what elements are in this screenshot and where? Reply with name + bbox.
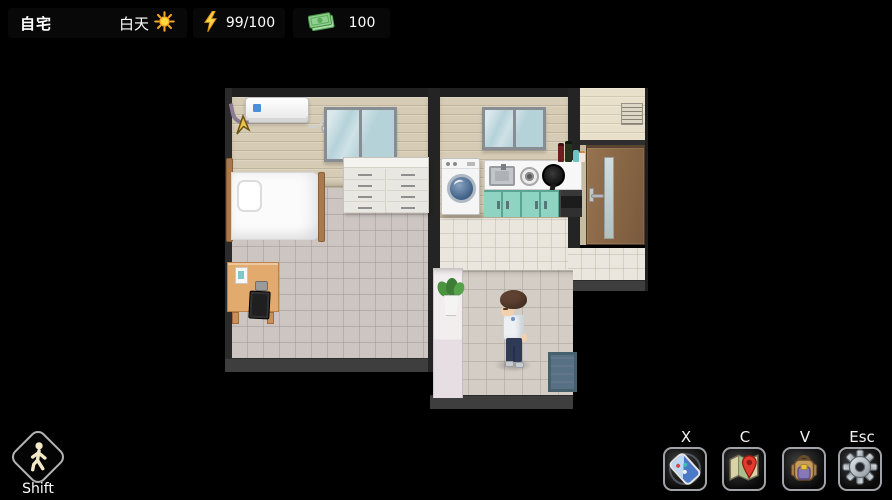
hotkey-label-esc: Esc <box>838 428 886 445</box>
bed[interactable] <box>226 158 331 242</box>
hotkey-group-x: X <box>663 428 709 491</box>
entry-floor <box>568 248 645 282</box>
hotkey-group-v: V <box>782 428 828 491</box>
banknote-icon <box>308 11 336 35</box>
dresser-top <box>344 158 428 168</box>
bedroom-window <box>324 107 397 162</box>
location-label: 自宅 <box>20 13 52 34</box>
entry-south-wall <box>567 280 648 291</box>
kitchen-counter[interactable] <box>484 160 582 217</box>
bedroom-south-wall <box>225 358 440 372</box>
backpack-icon <box>788 451 820 487</box>
shift-run-button[interactable]: Shift <box>8 433 70 497</box>
hotkey-label-x: X <box>663 428 709 445</box>
laptop[interactable] <box>248 290 270 319</box>
energy-bar: 99/100 <box>193 8 285 38</box>
walking-person-icon <box>21 440 55 478</box>
desk[interactable] <box>227 262 279 324</box>
desk-leg <box>232 312 239 324</box>
character-hair <box>500 290 527 309</box>
washer-drum <box>447 174 476 203</box>
money-value: 100 <box>349 15 376 31</box>
settings-gear-icon <box>842 449 878 489</box>
condiment-bottles <box>558 141 584 162</box>
player-character <box>493 290 533 374</box>
potted-plant <box>437 278 465 322</box>
phone-icon <box>668 451 703 487</box>
window-frame <box>513 110 516 147</box>
stove-burner <box>520 167 539 186</box>
dresser-drawers-right <box>387 169 429 211</box>
kitchen-floor <box>440 218 568 275</box>
sun-icon <box>154 11 175 36</box>
washing-machine[interactable] <box>441 158 480 215</box>
lightning-icon <box>203 11 218 36</box>
kitchen-window <box>482 107 546 150</box>
ac-display <box>253 104 261 112</box>
hotkey-label-v: V <box>782 428 828 445</box>
dresser-drawers-left <box>344 169 386 211</box>
character-pendant <box>511 317 515 321</box>
oven <box>559 190 582 217</box>
map-icon <box>728 451 760 487</box>
settings-button[interactable] <box>838 447 882 491</box>
character-shoe <box>505 361 514 367</box>
phone-button[interactable] <box>663 447 707 491</box>
time-label: 白天 <box>119 13 149 34</box>
door-handle-lever <box>591 194 604 198</box>
shift-key-label: Shift <box>8 481 68 497</box>
charger <box>255 281 268 291</box>
countertop <box>484 160 582 190</box>
door-glass <box>604 157 614 239</box>
doormat <box>548 352 577 392</box>
washer-panel <box>442 159 479 169</box>
hotkey-label-c: C <box>722 428 768 445</box>
character-pants <box>506 338 522 362</box>
plant-pot <box>443 295 459 316</box>
teal-cabinets <box>484 190 559 217</box>
right-wall <box>645 88 648 291</box>
bed-footpost <box>318 172 325 242</box>
location-time-bar: 自宅 白天 <box>8 8 187 38</box>
hotkey-group-c: C <box>722 428 768 491</box>
energy-value: 99/100 <box>226 15 275 31</box>
bag-button[interactable] <box>782 447 826 491</box>
sink <box>489 166 515 186</box>
cursor-arrow-icon <box>233 114 253 140</box>
entry-door[interactable] <box>586 145 645 245</box>
game-map <box>225 88 648 410</box>
pillow <box>237 180 262 212</box>
money-bar: 100 <box>293 8 390 38</box>
dresser[interactable] <box>343 157 429 213</box>
map-button[interactable] <box>722 447 766 491</box>
game-screen: 自宅 白天 99/100 <box>0 0 892 500</box>
wall-vent-icon <box>621 103 643 125</box>
air-conditioner[interactable] <box>245 97 309 123</box>
hotkey-group-esc: Esc <box>838 428 886 491</box>
character-shoe <box>515 362 524 368</box>
document <box>235 267 248 284</box>
window-frame <box>359 110 362 159</box>
